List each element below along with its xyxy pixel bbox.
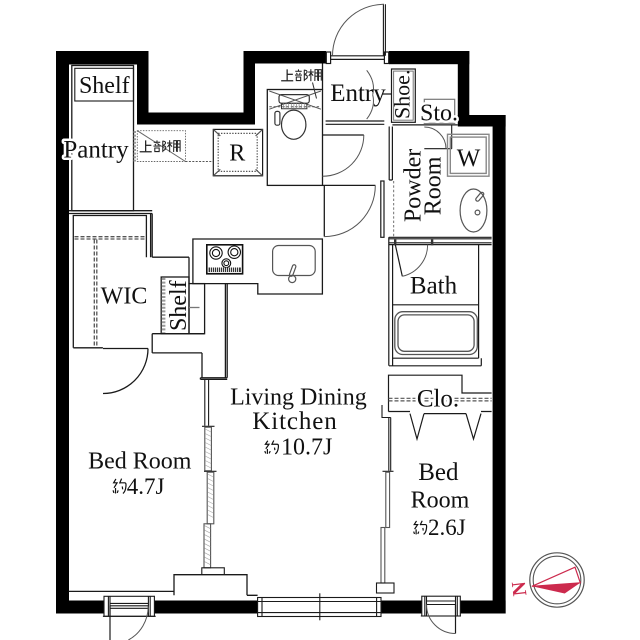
svg-text:2.6J: 2.6J xyxy=(428,515,466,540)
svg-text:WIC: WIC xyxy=(101,284,148,310)
svg-text:Room: Room xyxy=(411,488,470,514)
svg-text:Clo.: Clo. xyxy=(417,386,459,413)
svg-text:Living Dining: Living Dining xyxy=(230,385,367,411)
svg-text:W: W xyxy=(457,145,481,172)
svg-text:Room: Room xyxy=(421,156,447,215)
svg-text:Shoe.: Shoe. xyxy=(390,70,415,120)
svg-text:4.7J: 4.7J xyxy=(127,474,165,499)
svg-text:Pantry: Pantry xyxy=(63,137,129,164)
svg-text:R: R xyxy=(229,141,245,167)
svg-text:Shelf: Shelf xyxy=(166,280,192,331)
svg-text:Bed Room: Bed Room xyxy=(88,449,192,475)
svg-text:Bath: Bath xyxy=(410,273,458,300)
svg-text:Bed: Bed xyxy=(418,459,459,486)
svg-text:Sto.: Sto. xyxy=(420,101,458,127)
svg-text:10.7J: 10.7J xyxy=(281,434,332,460)
svg-text:Kitchen: Kitchen xyxy=(252,408,337,435)
svg-text:Shelf: Shelf xyxy=(79,73,130,99)
svg-text:Entry: Entry xyxy=(330,80,386,107)
